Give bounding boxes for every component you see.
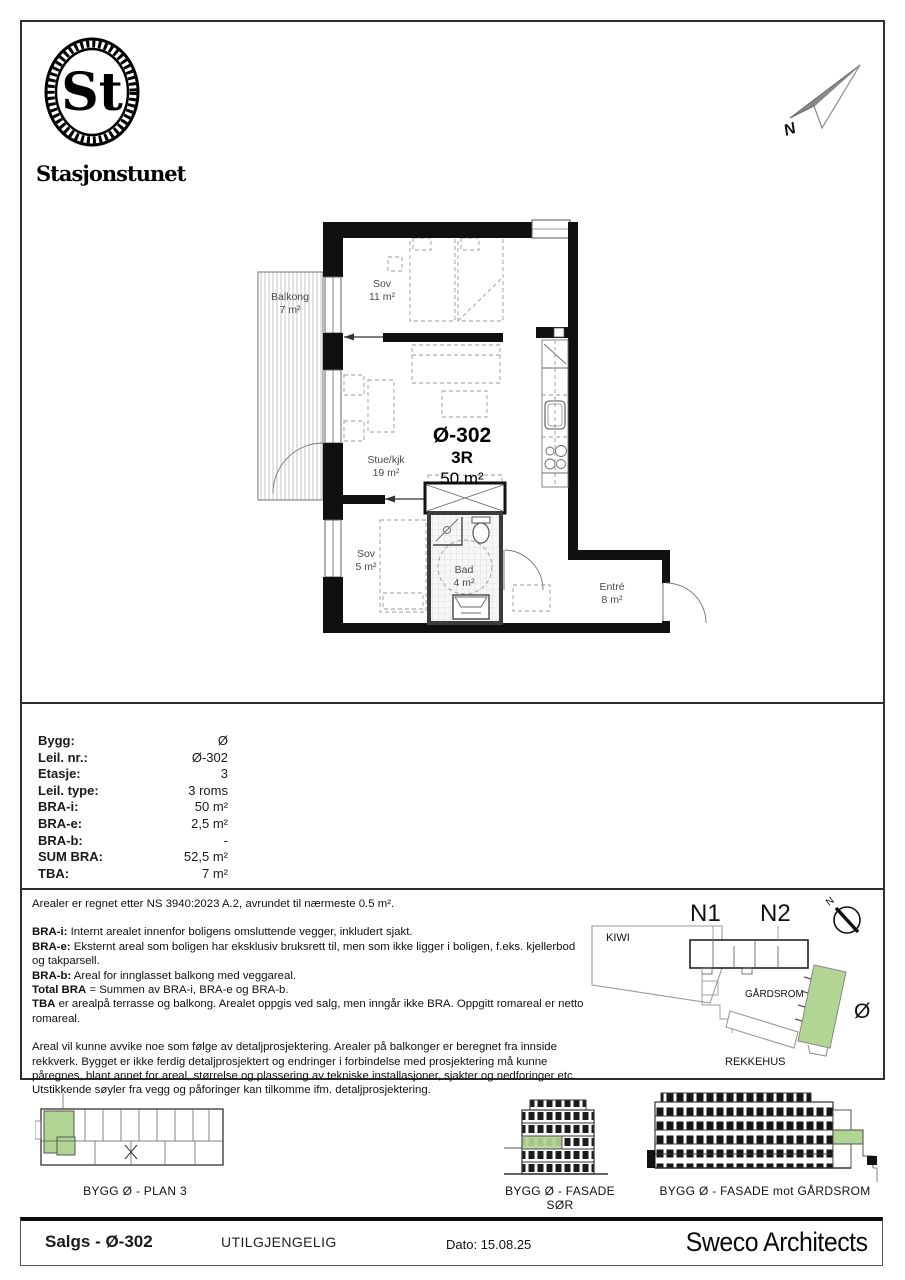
room-stue-area: 19 m² — [373, 467, 400, 479]
table-row: BRA-e:2,5 m² — [38, 816, 228, 833]
logo-monogram: St — [61, 62, 123, 123]
floor-plan: Balkong 7 m² Sov 11 m² Stue/kjk 19 m² So… — [240, 205, 710, 650]
room-balkong-name: Balkong — [271, 291, 309, 303]
table-row: SUM BRA:52,5 m² — [38, 849, 228, 866]
site-highlight-building — [795, 965, 846, 1056]
site-building-label: Ø — [854, 1000, 870, 1023]
diagram-fasade-sor — [500, 1096, 620, 1184]
logo: St Stasjonstunet — [30, 30, 170, 186]
site-gardsrom-label: GÅRDSROM — [745, 987, 804, 1000]
room-sov1-name: Sov — [373, 278, 392, 290]
site-rekkehus-label: REKKEHUS — [725, 1056, 786, 1068]
room-sov2-area: 5 m² — [356, 561, 378, 573]
footer-sales-id: Salgs - Ø-302 — [45, 1232, 153, 1252]
diagram-fasade-sor-label: BYGG Ø - FASADE SØR — [490, 1184, 630, 1212]
notes-def-tba: TBA er arealpå terrasse og balkong. Area… — [32, 997, 584, 1026]
north-arrow-label: N — [782, 120, 799, 140]
room-sov1-area: 11 m² — [369, 291, 396, 303]
footer-bar: Salgs - Ø-302 UTILGJENGELIG Dato: 15.08.… — [20, 1217, 883, 1266]
room-balkong-area: 7 m² — [280, 304, 302, 316]
divider-plan-table — [20, 702, 885, 704]
footer-architect-logo: Sweco Architects — [686, 1227, 868, 1258]
site-rekkehus-building — [726, 1011, 798, 1048]
diagram-plan3-label: BYGG Ø - PLAN 3 — [35, 1184, 235, 1198]
room-bad-name: Bad — [455, 564, 474, 576]
logo-seal: St — [30, 30, 150, 154]
table-row: Leil. nr.:Ø-302 — [38, 750, 228, 767]
site-compass-north: N — [824, 895, 836, 908]
divider-table-notes — [20, 888, 885, 890]
table-row: Etasje:3 — [38, 766, 228, 783]
site-compass: N — [824, 895, 860, 933]
site-kiwi-label: KIWI — [606, 932, 630, 944]
area-notes: Arealer er regnet etter NS 3940:2023 A.2… — [32, 897, 584, 1098]
notes-def-brai: BRA-i: Internt arealet innenfor boligens… — [32, 925, 584, 939]
site-n2-label: N2 — [760, 900, 791, 927]
site-n1-label: N1 — [690, 900, 721, 927]
site-plan: KIWI N1 N2 GÅRDSROM REKKEHUS Ø N — [582, 893, 884, 1075]
unit-area: 50 m² — [440, 469, 484, 488]
footer-status: UTILGJENGELIG — [221, 1234, 337, 1250]
table-row: BRA-b:- — [38, 833, 228, 850]
unit-number: Ø-302 — [433, 424, 491, 447]
table-row: Leil. type:3 roms — [38, 783, 228, 800]
north-arrow: N — [762, 52, 877, 147]
room-bad-area: 4 m² — [454, 577, 476, 589]
table-row: TBA:7 m² — [38, 866, 228, 883]
notes-def-brae: BRA-e: Eksternt areal som boligen har ek… — [32, 940, 584, 969]
bathroom — [425, 475, 543, 623]
unit-rooms: 3R — [451, 448, 473, 467]
table-row: BRA-i:50 m² — [38, 799, 228, 816]
table-row: Bygg:Ø — [38, 733, 228, 750]
kitchen-counter — [542, 340, 568, 487]
room-entre-area: 8 m² — [602, 594, 624, 606]
logo-wordmark: Stasjonstunet — [36, 161, 170, 186]
notes-def-totalbra: Total BRA = Summen av BRA-i, BRA-e og BR… — [32, 983, 584, 997]
room-sov2-name: Sov — [357, 548, 376, 560]
room-stue-name: Stue/kjk — [367, 454, 405, 466]
notes-disclaimer: Areal vil kunne avvike noe som følge av … — [32, 1040, 584, 1098]
unit-title: Ø-302 3R 50 m² — [433, 424, 491, 488]
notes-intro: Arealer er regnet etter NS 3940:2023 A.2… — [32, 897, 584, 911]
unit-info-table: Bygg:Ø Leil. nr.:Ø-302 Etasje:3 Leil. ty… — [38, 733, 228, 882]
room-entre-name: Entré — [599, 581, 624, 593]
footer-date: Dato: 15.08.25 — [446, 1237, 531, 1252]
notes-def-brab: BRA-b: Areal for innglasset balkong med … — [32, 969, 584, 983]
diagram-plan3 — [35, 1093, 235, 1181]
diagram-fasade-gardsrom — [645, 1090, 885, 1186]
diagram-fasade-gardsrom-label: BYGG Ø - FASADE mot GÅRDSROM — [645, 1184, 885, 1198]
